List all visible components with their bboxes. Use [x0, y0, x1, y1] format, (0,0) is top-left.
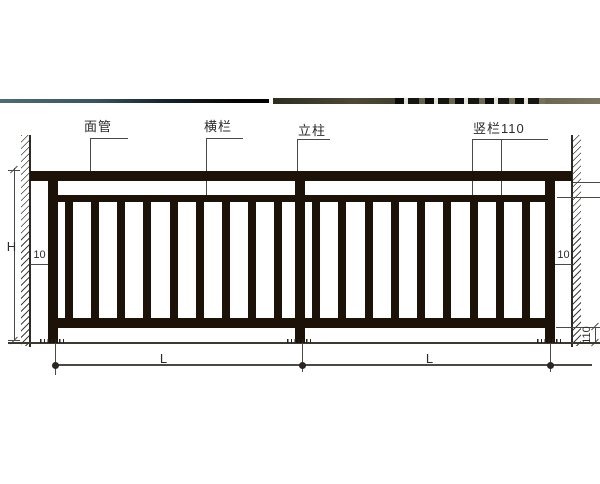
- vertical-bar: [338, 202, 346, 318]
- vertical-bar: [117, 202, 125, 318]
- leader-drop-vertical-bars-2: [501, 139, 502, 200]
- bar-panel-right: [305, 202, 545, 318]
- dim-line-spans: [55, 364, 592, 365]
- post-base-ticks-left: [40, 339, 66, 343]
- dim-label-left-gap: 10: [31, 249, 48, 261]
- left-wall-line: [29, 135, 31, 347]
- leader-underline-vertical-bars: [472, 139, 548, 140]
- dim-label-height: H: [5, 240, 19, 254]
- leader-underline-top-tube: [90, 138, 128, 139]
- vertical-bar: [274, 202, 282, 318]
- right-wall-line: [571, 135, 573, 347]
- dim-dot-right: [547, 362, 554, 369]
- post-middle: [295, 171, 305, 343]
- ext-line-top-rail: [573, 182, 600, 183]
- vertical-bar: [91, 202, 99, 318]
- vertical-bar: [496, 202, 504, 318]
- dim-label-right-gap: 10: [555, 249, 572, 261]
- ext-line-cross-rail: [557, 197, 600, 198]
- post-left: [48, 171, 58, 343]
- callout-vertical-bars: 竖栏110: [473, 122, 525, 136]
- leader-underline-post: [297, 139, 330, 140]
- photo-strip-left: [0, 99, 269, 103]
- dim-label-left-span: L: [156, 352, 172, 366]
- dim-dot-middle: [299, 362, 306, 369]
- vertical-bar: [443, 202, 451, 318]
- vertical-bar: [222, 202, 230, 318]
- vertical-bar: [143, 202, 151, 318]
- dim-line-right-gap: [555, 264, 572, 265]
- dim-label-right-span: L: [422, 352, 438, 366]
- post-base-ticks-middle: [287, 339, 313, 343]
- dim-dot-left: [52, 362, 59, 369]
- leader-drop-top-tube: [90, 138, 91, 172]
- right-wall-hatch: [572, 135, 581, 346]
- post-right: [545, 171, 555, 343]
- leader-drop-cross-rail: [206, 138, 207, 199]
- ext-line-post-left: [55, 343, 56, 375]
- vertical-bar: [522, 202, 530, 318]
- callout-cross-rail: 横栏: [204, 120, 232, 134]
- bar-panel-left: [58, 202, 295, 318]
- leader-underline-cross-rail: [206, 138, 243, 139]
- vertical-bar: [170, 202, 178, 318]
- dim-line-left-gap: [30, 264, 48, 265]
- photo-strip-dashes: [395, 98, 545, 104]
- vertical-bar: [417, 202, 425, 318]
- railing-elevation-diagram: 面管 横栏 立柱 竖栏110 H 10 10 110 L L: [0, 0, 600, 484]
- callout-post: 立柱: [298, 124, 326, 138]
- vertical-bar: [470, 202, 478, 318]
- dim-height-line: [14, 168, 15, 341]
- vertical-bar: [391, 202, 399, 318]
- vertical-bar: [65, 202, 73, 318]
- leader-drop-vertical-bars-1: [472, 139, 473, 197]
- vertical-bar: [365, 202, 373, 318]
- callout-top-tube: 面管: [84, 120, 112, 134]
- vertical-bar: [196, 202, 204, 318]
- vertical-bar: [312, 202, 320, 318]
- vertical-bar: [248, 202, 256, 318]
